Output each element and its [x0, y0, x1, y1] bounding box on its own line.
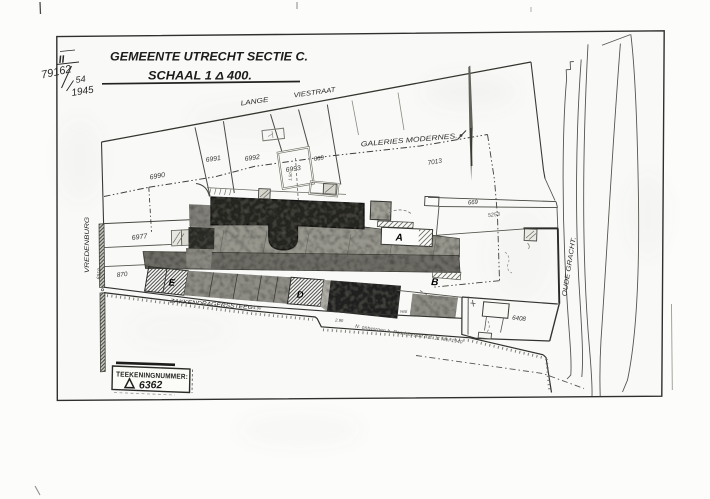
svg-text:VREDENBURG: VREDENBURG: [84, 217, 91, 273]
svg-text:2.90: 2.90: [334, 317, 344, 323]
svg-text:54: 54: [75, 74, 86, 85]
svg-text:1.50: 1.50: [288, 172, 294, 181]
svg-text:SCHAAL 1 Δ 400.: SCHAAL 1 Δ 400.: [148, 71, 252, 83]
svg-text:6408: 6408: [512, 315, 527, 323]
svg-text:6362: 6362: [139, 379, 163, 391]
svg-text:B: B: [431, 277, 439, 288]
svg-text:870: 870: [116, 271, 128, 279]
svg-text:6918: 6918: [96, 268, 103, 280]
svg-text:GEMEENTE UTRECHT SECTIE C.: GEMEENTE UTRECHT SECTIE C.: [110, 50, 308, 64]
svg-text:669: 669: [468, 200, 479, 207]
svg-text:4.90: 4.90: [253, 305, 262, 311]
svg-text:D: D: [296, 290, 304, 301]
svg-text:5253: 5253: [488, 212, 501, 219]
svg-text:A: A: [394, 232, 403, 243]
